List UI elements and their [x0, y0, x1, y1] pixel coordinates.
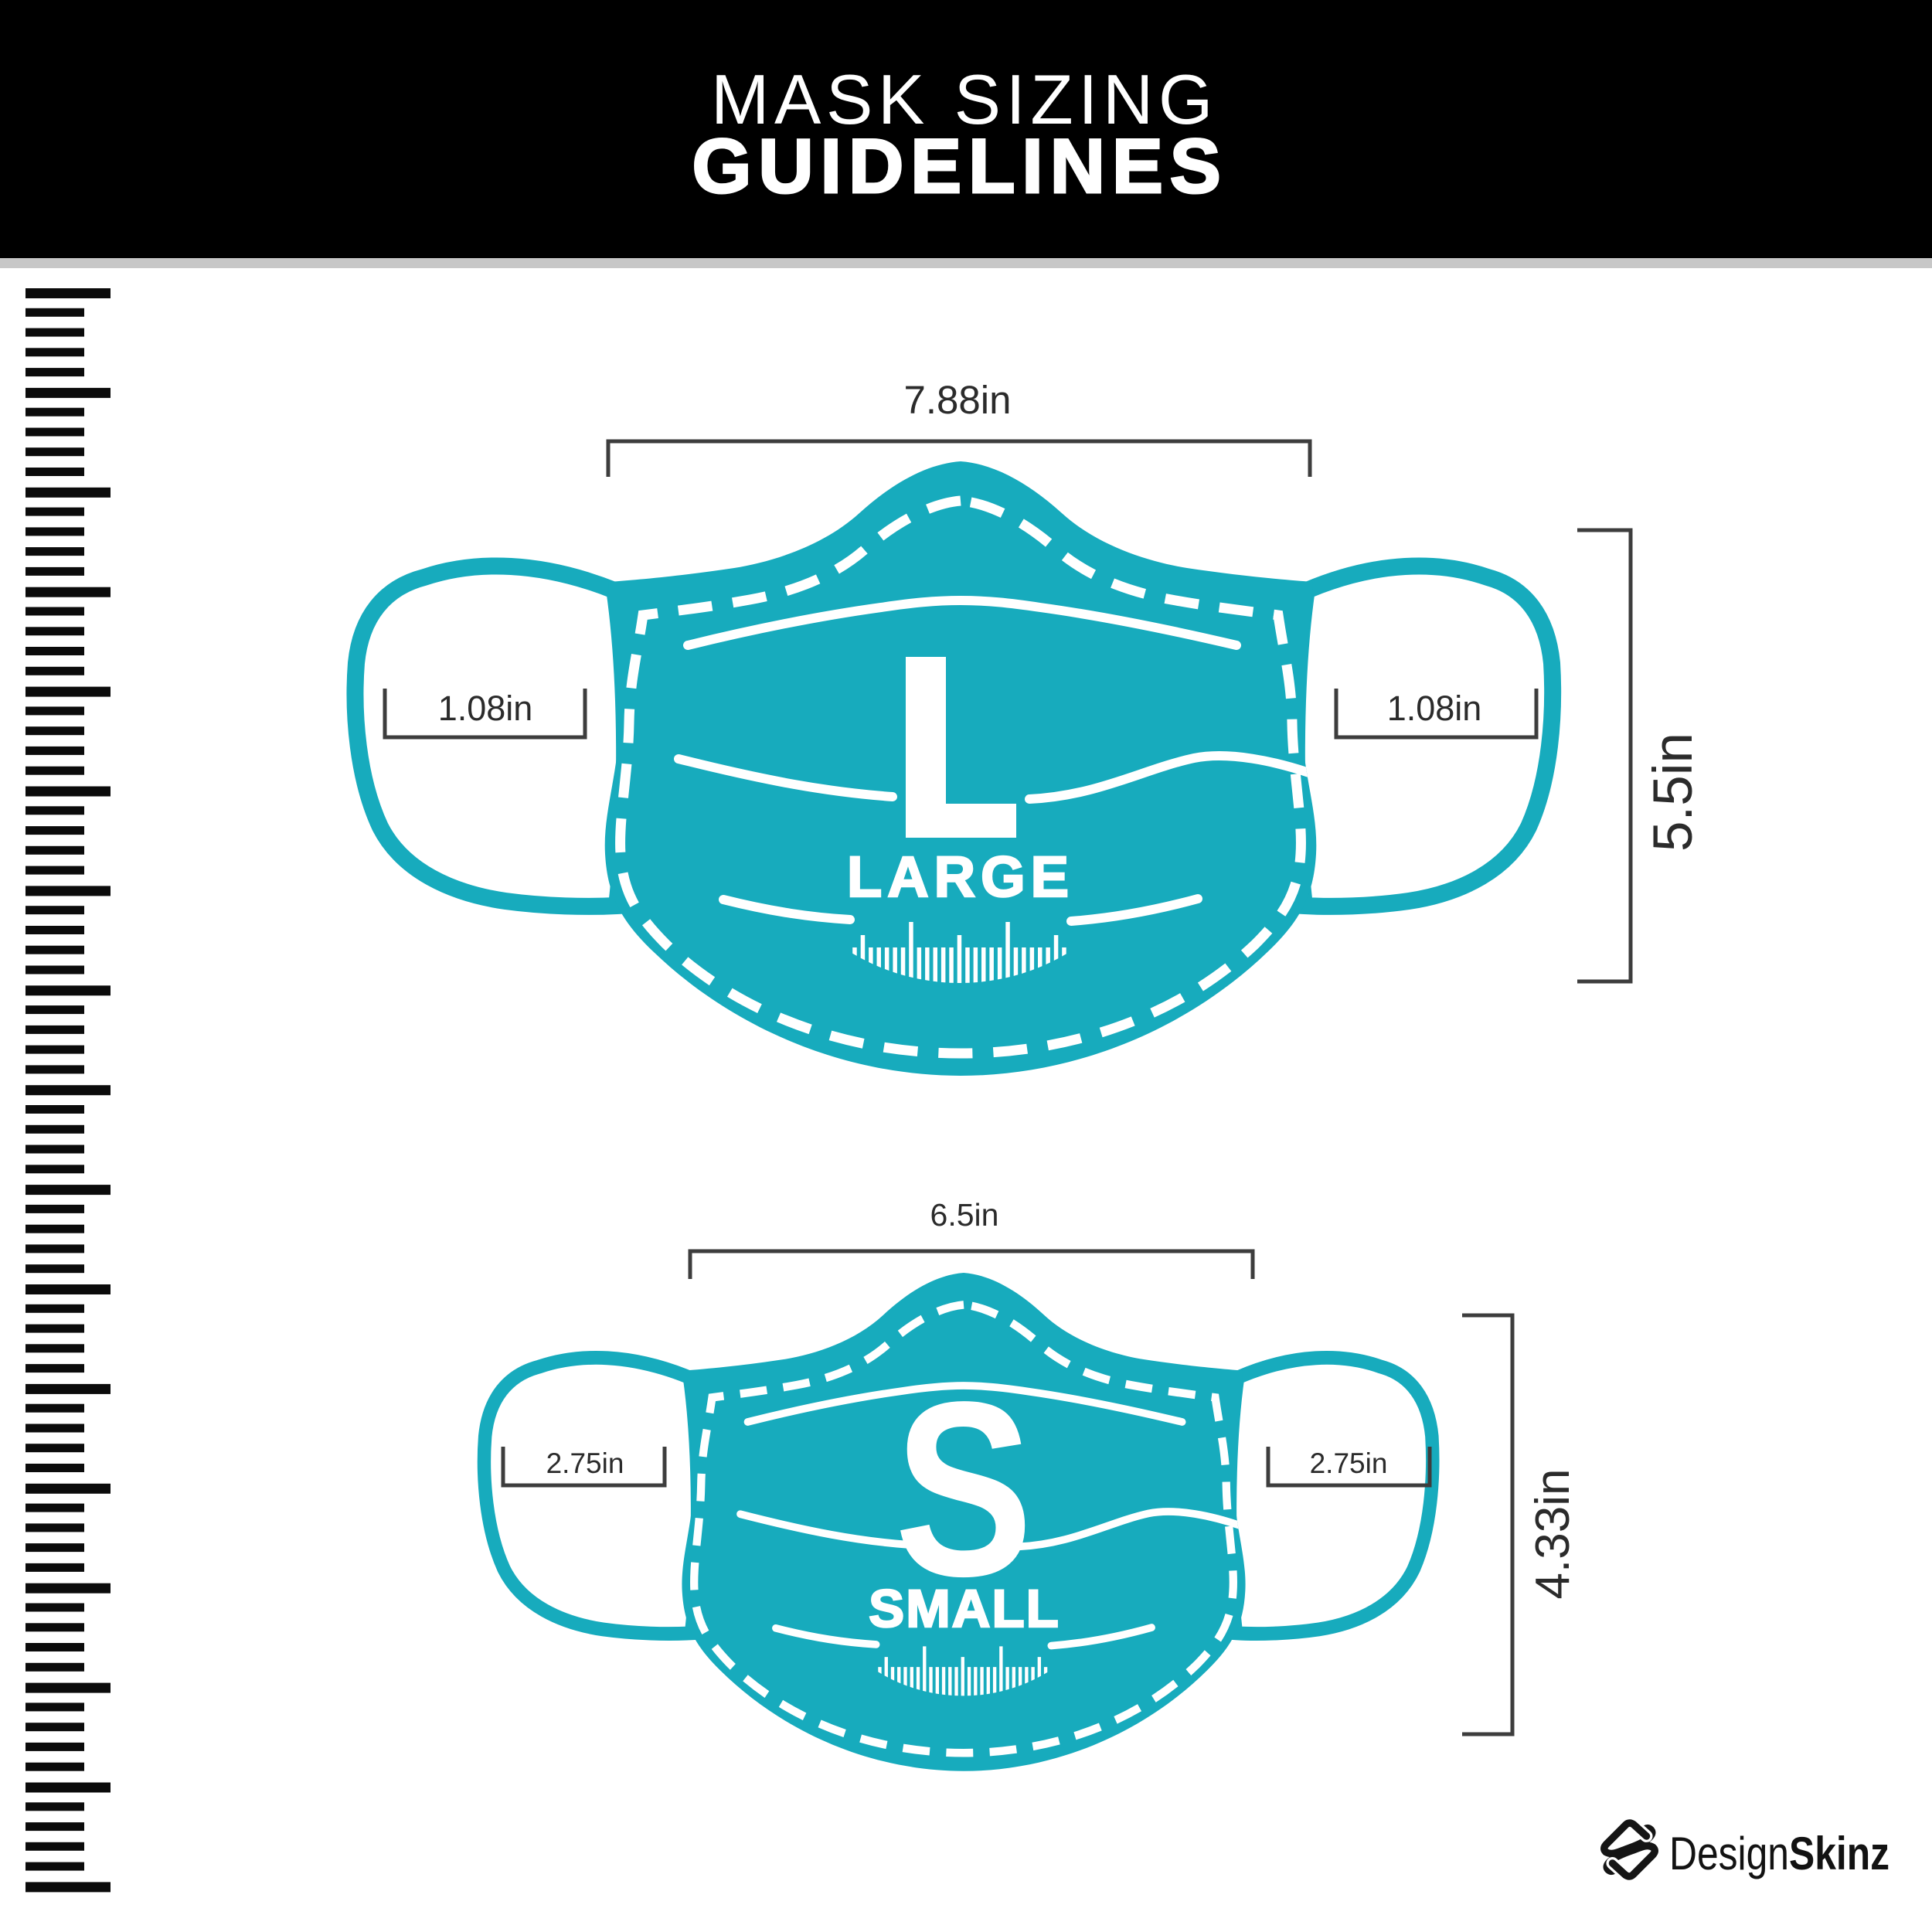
- svg-text:7.88in: 7.88in: [904, 378, 1012, 422]
- svg-text:2.75in: 2.75in: [546, 1447, 624, 1479]
- svg-text:2.75in: 2.75in: [1310, 1447, 1388, 1479]
- svg-text:DesignSkinz: DesignSkinz: [1669, 1828, 1889, 1879]
- svg-text:4.33in: 4.33in: [1526, 1469, 1580, 1600]
- svg-text:6.5in: 6.5in: [930, 1197, 999, 1233]
- svg-text:GUIDELINES: GUIDELINES: [692, 123, 1227, 209]
- svg-text:1.08in: 1.08in: [438, 689, 533, 728]
- svg-text:5.5in: 5.5in: [1643, 733, 1704, 852]
- svg-text:LARGE: LARGE: [847, 845, 1074, 909]
- svg-text:SMALL: SMALL: [869, 1579, 1060, 1638]
- svg-text:1.08in: 1.08in: [1387, 689, 1482, 728]
